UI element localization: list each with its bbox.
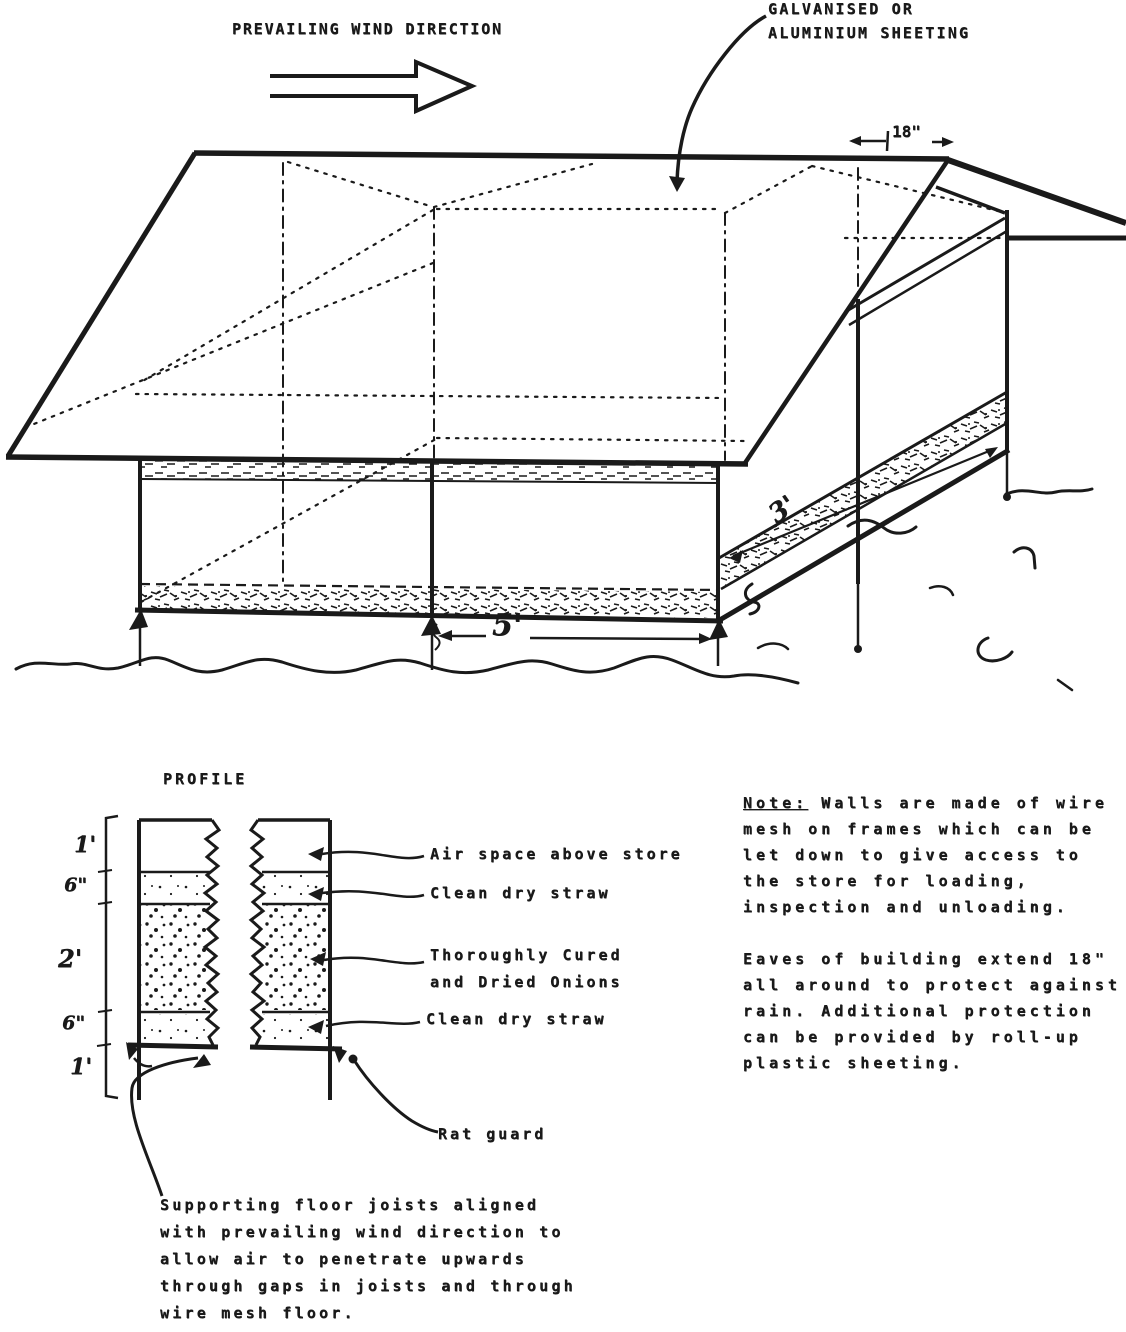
side-note-block: Note: Walls are made of wire mesh on fra… bbox=[743, 790, 1108, 920]
joists-caption-block: Supporting floor joists aligned with pre… bbox=[160, 1192, 576, 1327]
joists-caption-line: wire mesh floor. bbox=[160, 1300, 576, 1327]
scanned-diagram-page: PREVAILING WIND DIRECTION GALVANISED OR … bbox=[0, 0, 1126, 1332]
note-line: inspection and unloading. bbox=[743, 894, 1108, 920]
cured-onions-label-line1: Thoroughly Cured bbox=[430, 946, 623, 964]
diagram-linework bbox=[0, 0, 1126, 1332]
side-note-block-para2: Eaves of building extend 18" all around … bbox=[743, 946, 1121, 1076]
scale-mark-2ft: 2' bbox=[58, 944, 82, 973]
joists-caption-line: Supporting floor joists aligned bbox=[160, 1192, 576, 1219]
rat-guard-label: Rat guard bbox=[438, 1125, 546, 1143]
joists-caption-line: with prevailing wind direction to bbox=[160, 1219, 576, 1246]
rat-guard-leader-line bbox=[349, 1055, 439, 1133]
note-line: Eaves of building extend 18" bbox=[743, 946, 1121, 972]
note-label: Note: bbox=[743, 794, 808, 812]
cured-onions-label-line2: and Dried Onions bbox=[430, 973, 623, 991]
scale-mark-1ft-bottom: 1' bbox=[70, 1054, 92, 1080]
note-line: let down to give access to bbox=[743, 842, 1108, 868]
eave-overhang-dimension: 18" bbox=[892, 122, 921, 141]
joists-leader-line bbox=[132, 1054, 211, 1196]
note-line-1-rest: Walls are made of wire bbox=[808, 794, 1108, 812]
scale-mark-1ft-top: 1' bbox=[74, 832, 96, 858]
scale-mark-6in-bottom: 6" bbox=[62, 1012, 85, 1034]
note-line: can be provided by roll-up bbox=[743, 1024, 1121, 1050]
note-line: rain. Additional protection bbox=[743, 998, 1121, 1024]
air-space-label: Air space above store bbox=[430, 845, 683, 863]
front-bay-dimension-label: 5' bbox=[492, 608, 522, 643]
roof-outline bbox=[6, 153, 1126, 464]
scale-mark-6in-top: 6" bbox=[64, 874, 87, 896]
clean-dry-straw-bottom-label: Clean dry straw bbox=[426, 1010, 606, 1028]
note-line: the store for loading, bbox=[743, 868, 1108, 894]
note-line: plastic sheeting. bbox=[743, 1050, 1121, 1076]
sheeting-leader-line bbox=[669, 16, 766, 192]
note-line: mesh on frames which can be bbox=[743, 816, 1108, 842]
sheeting-label-line1: GALVANISED OR bbox=[768, 0, 914, 18]
sheeting-label-line2: ALUMINIUM SHEETING bbox=[768, 24, 970, 42]
wind-direction-arrow bbox=[270, 62, 472, 111]
note-line: all around to protect against bbox=[743, 972, 1121, 998]
prevailing-wind-label: PREVAILING WIND DIRECTION bbox=[232, 20, 503, 38]
front-bay-dimension bbox=[433, 624, 712, 650]
profile-title: PROFILE bbox=[163, 770, 247, 788]
profile-scale-bracket bbox=[97, 816, 118, 1098]
joists-caption-line: through gaps in joists and through bbox=[160, 1273, 576, 1300]
hidden-frame-dotted-lines bbox=[29, 162, 1000, 602]
clean-dry-straw-top-label: Clean dry straw bbox=[430, 884, 610, 902]
joists-caption-line: allow air to penetrate upwards bbox=[160, 1246, 576, 1273]
note-line-1: Note: Walls are made of wire bbox=[743, 790, 1108, 816]
side-wall bbox=[718, 210, 1011, 653]
